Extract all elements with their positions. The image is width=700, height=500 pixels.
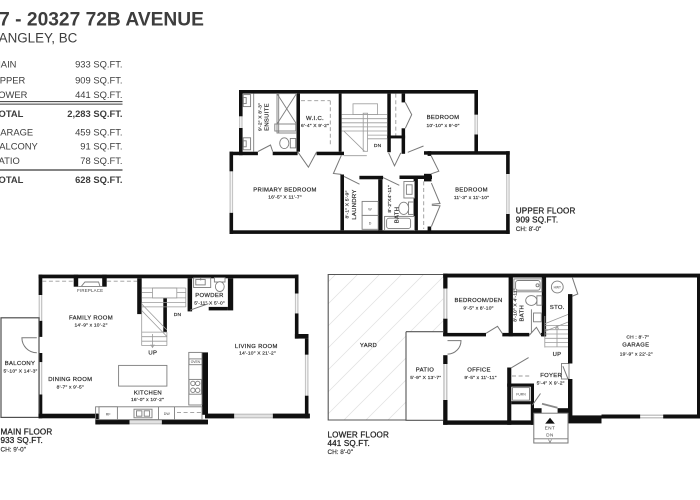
svg-text:5'-11" X 5'-0": 5'-11" X 5'-0": [194, 300, 225, 306]
svg-text:OFFICE: OFFICE: [467, 368, 491, 374]
svg-text:628 SQ.FT.: 628 SQ.FT.: [75, 174, 122, 185]
svg-text:10'-10" x 9'-0": 10'-10" x 9'-0": [426, 123, 459, 129]
svg-text:78 SQ.FT.: 78 SQ.FT.: [80, 155, 122, 166]
svg-text:TOTAL: TOTAL: [0, 174, 24, 185]
svg-text:UP: UP: [148, 350, 157, 356]
svg-text:16'-5" X 11'-7": 16'-5" X 11'-7": [268, 195, 302, 201]
svg-text:BATH: BATH: [519, 305, 525, 322]
svg-text:8'-2"X4'-11": 8'-2"X4'-11": [387, 185, 393, 213]
svg-text:LANGLEY, BC: LANGLEY, BC: [0, 31, 78, 46]
svg-text:DN: DN: [174, 312, 182, 318]
svg-text:ENSUITE: ENSUITE: [264, 103, 270, 131]
svg-text:D: D: [369, 222, 372, 226]
svg-text:PATIO: PATIO: [0, 155, 20, 166]
svg-text:ENT: ENT: [545, 425, 555, 430]
svg-text:DINING ROOM: DINING ROOM: [48, 377, 92, 383]
svg-text:BATH: BATH: [394, 207, 400, 224]
svg-text:933 SQ.FT.: 933 SQ.FT.: [1, 436, 43, 445]
svg-text:BALCONY: BALCONY: [0, 140, 39, 151]
svg-text:FOYER: FOYER: [540, 373, 562, 379]
svg-text:UP: UP: [553, 352, 562, 358]
svg-text:FURN: FURN: [516, 393, 526, 397]
svg-text:FIREPLACE: FIREPLACE: [77, 288, 103, 293]
svg-text:GARAGE: GARAGE: [0, 126, 33, 137]
svg-text:FAMILY ROOM: FAMILY ROOM: [69, 316, 113, 322]
svg-text:5'-4" X 9'-2": 5'-4" X 9'-2": [537, 380, 565, 386]
svg-text:91 SQ.FT.: 91 SQ.FT.: [80, 140, 122, 151]
svg-text:17 - 20327 72B AVENUE: 17 - 20327 72B AVENUE: [0, 10, 204, 31]
svg-text:909 SQ.FT.: 909 SQ.FT.: [75, 75, 122, 86]
svg-text:459 SQ.FT.: 459 SQ.FT.: [75, 126, 122, 137]
svg-text:CH: 8'-0": CH: 8'-0": [516, 226, 542, 233]
svg-text:LAUNDRY: LAUNDRY: [352, 189, 358, 219]
svg-text:9'-5" x 11'-11": 9'-5" x 11'-11": [464, 375, 496, 381]
svg-text:GARAGE: GARAGE: [622, 342, 649, 348]
svg-text:11'-3" x 11'-10": 11'-3" x 11'-10": [454, 195, 489, 201]
svg-text:CH: 8'-0": CH: 8'-0": [328, 449, 354, 456]
svg-text:5'-10" X 14'-3": 5'-10" X 14'-3": [4, 369, 38, 375]
svg-text:YARD: YARD: [360, 343, 377, 349]
svg-text:OVEN: OVEN: [191, 360, 201, 364]
svg-text:PRIMARY BEDROOM: PRIMARY BEDROOM: [253, 188, 317, 194]
svg-text:DW: DW: [164, 412, 171, 416]
svg-text:909 SQ.FT.: 909 SQ.FT.: [516, 216, 558, 225]
svg-text:CH : 8'-7": CH : 8'-7": [626, 335, 649, 341]
svg-text:8'-10" X 4'-11": 8'-10" X 4'-11": [513, 288, 519, 322]
svg-text:W.I.C.: W.I.C.: [306, 116, 324, 122]
svg-text:8'-7" x 9'-5": 8'-7" x 9'-5": [57, 384, 84, 390]
svg-text:9'-2" X 8'-3": 9'-2" X 8'-3": [258, 103, 264, 131]
svg-text:RF: RF: [106, 413, 112, 417]
svg-text:441 SQ.FT.: 441 SQ.FT.: [328, 439, 370, 448]
svg-text:CH: 9'-0": CH: 9'-0": [1, 446, 27, 453]
svg-text:TOTAL: TOTAL: [0, 108, 24, 119]
svg-text:LOWER: LOWER: [0, 89, 28, 100]
svg-text:KITCHEN: KITCHEN: [134, 391, 162, 397]
svg-text:STO.: STO.: [550, 305, 565, 311]
svg-text:BALCONY: BALCONY: [5, 361, 35, 367]
svg-text:6'-4" X 9'-2": 6'-4" X 9'-2": [301, 123, 329, 129]
svg-text:UPPER: UPPER: [0, 75, 26, 86]
svg-text:14'-9" x 10'-2": 14'-9" x 10'-2": [74, 323, 107, 329]
svg-text:W: W: [368, 208, 372, 212]
svg-text:441 SQ.FT.: 441 SQ.FT.: [75, 89, 122, 100]
svg-text:5'-9" X 13'-7": 5'-9" X 13'-7": [410, 375, 441, 381]
svg-text:LIVING ROOM: LIVING ROOM: [235, 344, 278, 350]
svg-text:BEDROOM: BEDROOM: [455, 188, 488, 194]
svg-text:2,283 SQ.FT.: 2,283 SQ.FT.: [67, 108, 122, 119]
svg-text:8'-1" X 5'-9": 8'-1" X 5'-9": [345, 190, 351, 218]
svg-text:14'-10" X 21'-2": 14'-10" X 21'-2": [239, 351, 276, 357]
svg-text:9'-5" x 8'-10": 9'-5" x 8'-10": [463, 306, 493, 312]
svg-text:19'-9" x 22'-2": 19'-9" x 22'-2": [620, 352, 653, 358]
svg-text:MAIN: MAIN: [0, 58, 16, 69]
svg-text:PATIO: PATIO: [416, 367, 434, 373]
svg-text:POWDER: POWDER: [195, 293, 223, 299]
svg-text:BEDROOM: BEDROOM: [427, 115, 460, 121]
svg-text:HWT: HWT: [554, 285, 561, 289]
svg-text:16'-0" x 10'-2": 16'-0" x 10'-2": [131, 397, 164, 403]
svg-text:BEDROOM/DEN: BEDROOM/DEN: [454, 298, 502, 304]
svg-text:UPPER FLOOR: UPPER FLOOR: [516, 207, 576, 216]
svg-text:DN: DN: [546, 433, 553, 438]
svg-text:933 SQ.FT.: 933 SQ.FT.: [75, 58, 122, 69]
svg-text:DN: DN: [374, 143, 382, 149]
